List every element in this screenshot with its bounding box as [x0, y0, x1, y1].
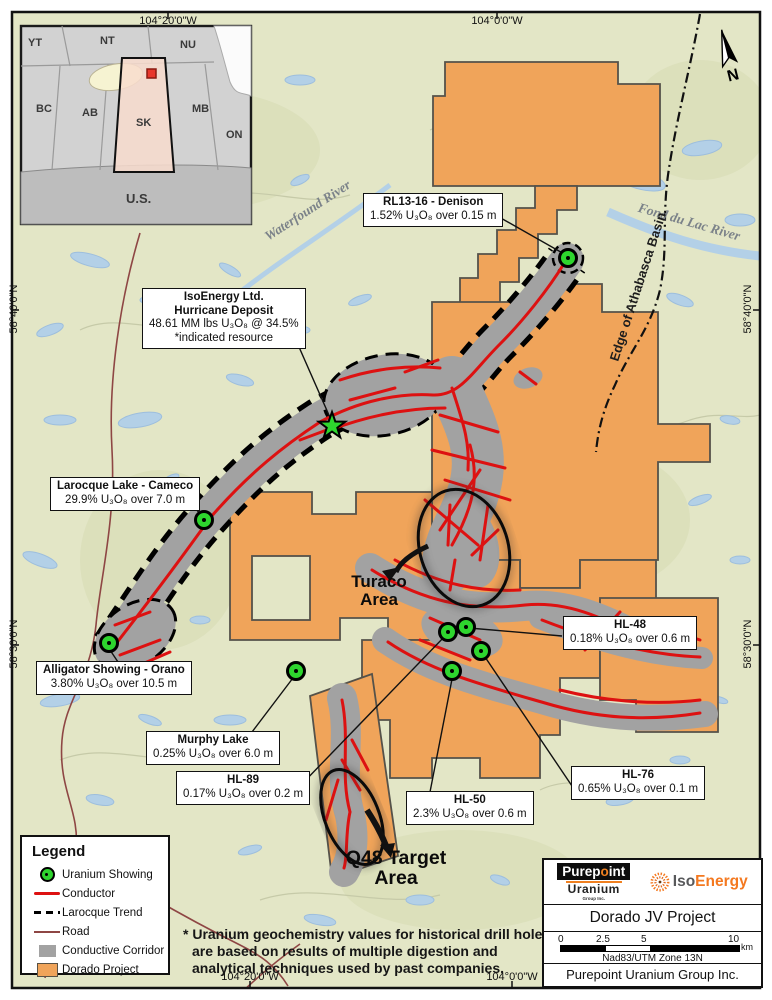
callout-alligator: Alligator Showing - Orano 3.80% U₃O₈ ove… — [36, 661, 192, 695]
coord-right-lower: 58°30'0"N — [742, 609, 754, 679]
callout-title: HL-89 — [183, 774, 303, 788]
coord-top-left: 104°20'0"W — [128, 15, 208, 27]
larocque-trend-icon — [32, 911, 62, 915]
datum-label: Nad83/UTM Zone 13N — [550, 953, 755, 964]
turaco-area-label: Turaco Area — [338, 573, 420, 609]
panel-title: Dorado JV Project — [544, 905, 761, 931]
callout-value: 0.17% U₃O₈ over 0.2 m — [183, 788, 303, 802]
callout-rl13-16: RL13-16 - Denison 1.52% U₃O₈ over 0.15 m — [363, 193, 503, 227]
callout-hl50: HL-50 2.3% U₃O₈ over 0.6 m — [406, 791, 534, 825]
legend-item-dorado-project: Dorado Project — [32, 960, 168, 979]
svg-text:NU: NU — [180, 39, 196, 51]
showing-hl50 — [444, 663, 461, 680]
legend-item-road: Road — [32, 922, 168, 941]
callout-title: Larocque Lake - Cameco — [57, 480, 193, 494]
inset-sk-outline — [114, 58, 174, 172]
callout-hl76: HL-76 0.65% U₃O₈ over 0.1 m — [571, 766, 705, 800]
callout-hurricane: IsoEnergy Ltd. Hurricane Deposit 48.61 M… — [142, 288, 306, 349]
callout-value: 0.65% U₃O₈ over 0.1 m — [578, 783, 698, 797]
showing-murphy — [288, 663, 305, 680]
inset-project-marker — [147, 69, 156, 78]
showing-hl48 — [458, 619, 475, 636]
claim-notch — [252, 556, 310, 620]
coord-left-upper: 58°40'0"N — [8, 274, 20, 344]
showing-rl13-16 — [560, 250, 577, 267]
callout-value: 0.25% U₃O₈ over 6.0 m — [153, 748, 273, 762]
showing-alligator — [101, 635, 118, 652]
svg-text:NT: NT — [100, 35, 115, 47]
callout-note: *indicated resource — [149, 332, 299, 346]
purepoint-logo: Purepoint Uranium Group Inc. — [557, 863, 630, 902]
map-figure: { "frame": { "top_left": "104°20'0\"W", … — [0, 0, 772, 1000]
uranium-showing-icon — [32, 867, 62, 882]
q48-target-area-label: Q48 Target Area — [340, 848, 452, 889]
coord-top-right: 104°0'0"W — [457, 15, 537, 27]
callout-value: 1.52% U₃O₈ over 0.15 m — [370, 210, 496, 224]
legend-item-larocque-trend: Larocque Trend — [32, 903, 168, 922]
coord-left-lower: 58°30'0"N — [8, 609, 20, 679]
callout-title: Hurricane Deposit — [149, 305, 299, 319]
legend-item-conductive-corridor: Conductive Corridor — [32, 941, 168, 960]
callout-title: RL13-16 - Denison — [370, 196, 496, 210]
svg-text:ON: ON — [226, 129, 243, 141]
svg-text:SK: SK — [136, 117, 151, 129]
callout-title: HL-50 — [413, 794, 527, 808]
svg-text:AB: AB — [82, 107, 98, 119]
panel-credit: Purepoint Uranium Group Inc. — [544, 964, 761, 987]
showing-hl76 — [473, 643, 490, 660]
showing-larocque — [196, 512, 213, 529]
isoenergy-logo: IsoEnergy — [649, 871, 748, 893]
callout-title: HL-76 — [578, 769, 698, 783]
svg-text:BC: BC — [36, 103, 52, 115]
road-icon — [32, 931, 62, 933]
callout-title: Murphy Lake — [153, 734, 273, 748]
logo-row: Purepoint Uranium Group Inc. IsoEnergy — [544, 860, 761, 905]
legend-item-uranium-showing: Uranium Showing — [32, 865, 168, 884]
callout-hl89: HL-89 0.17% U₃O₈ over 0.2 m — [176, 771, 310, 805]
svg-text:YT: YT — [28, 37, 42, 49]
conductive-corridor-icon — [32, 945, 62, 957]
info-panel: Purepoint Uranium Group Inc. IsoEnergy D… — [542, 858, 763, 988]
callout-larocque: Larocque Lake - Cameco 29.9% U₃O₈ over 7… — [50, 477, 200, 511]
footnote: * Uranium geochemistry values for histor… — [183, 926, 558, 976]
callout-title: HL-48 — [570, 619, 690, 633]
conductor-icon — [32, 892, 62, 895]
callout-value: 29.9% U₃O₈ over 7.0 m — [57, 494, 193, 508]
callout-title: IsoEnergy Ltd. — [149, 291, 299, 305]
callout-value: 0.18% U₃O₈ over 0.6 m — [570, 633, 690, 647]
callout-value: 48.61 MM lbs U₃O₈ @ 34.5% — [149, 318, 299, 332]
callout-title: Alligator Showing - Orano — [43, 664, 185, 678]
callout-value: 2.3% U₃O₈ over 0.6 m — [413, 808, 527, 822]
svg-text:MB: MB — [192, 103, 209, 115]
scale-bar: 0 2.5 5 10 km Nad83/UTM Zone 13N — [544, 932, 761, 964]
inset-map: YT NT NU BC AB SK MB ON U.S. — [21, 26, 251, 224]
scale-bar-segments — [560, 945, 740, 952]
dorado-project-icon — [32, 963, 62, 977]
coord-right-upper: 58°40'0"N — [742, 274, 754, 344]
legend-title: Legend — [32, 843, 168, 860]
callout-murphy: Murphy Lake 0.25% U₃O₈ over 6.0 m — [146, 731, 280, 765]
callout-hl48: HL-48 0.18% U₃O₈ over 0.6 m — [563, 616, 697, 650]
legend-item-conductor: Conductor — [32, 884, 168, 903]
isoenergy-sunburst-icon — [649, 871, 671, 893]
showing-hl89 — [440, 624, 457, 641]
callout-value: 3.80% U₃O₈ over 10.5 m — [43, 678, 185, 692]
svg-text:U.S.: U.S. — [126, 191, 151, 206]
legend: Legend Uranium Showing Conductor Larocqu… — [20, 835, 170, 975]
